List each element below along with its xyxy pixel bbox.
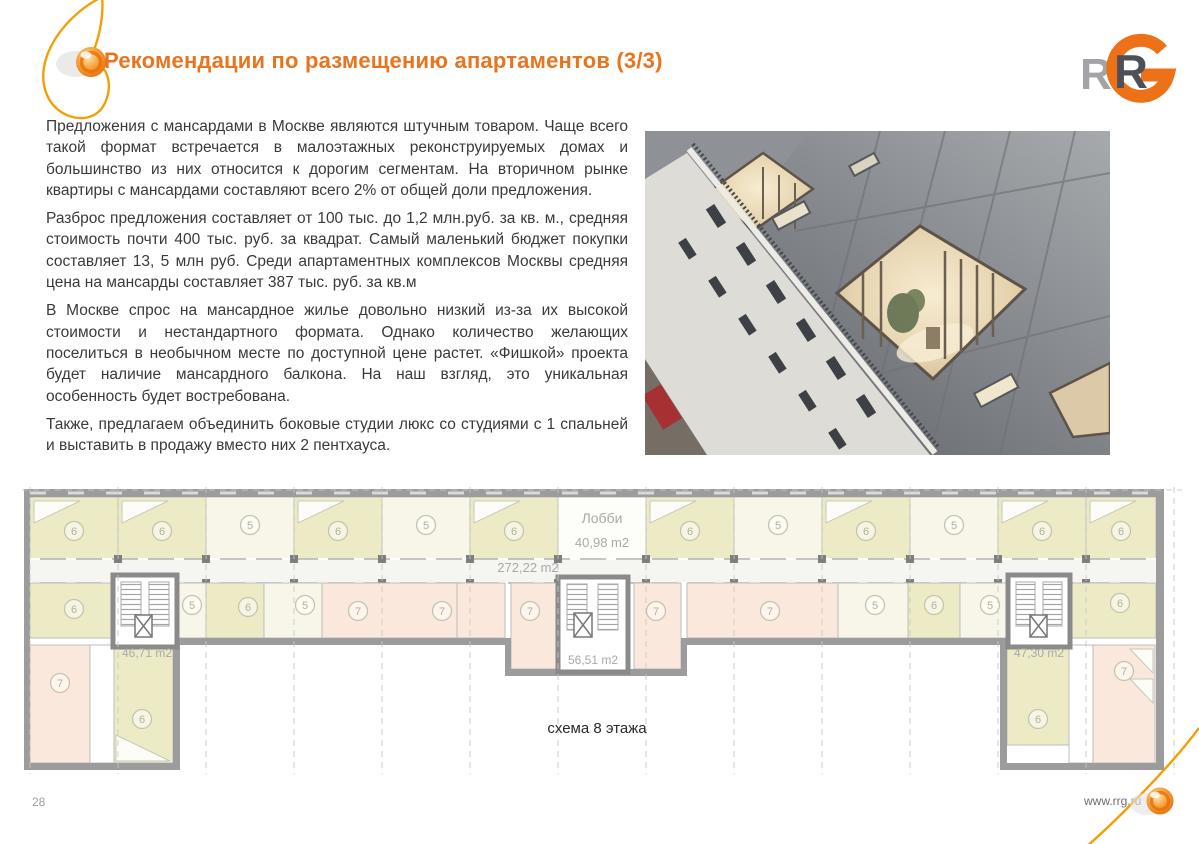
plan-caption: схема 8 этажа: [547, 720, 647, 737]
svg-text:6: 6: [931, 600, 937, 612]
room-number-badge: 6: [133, 710, 152, 729]
room-number-badge: 5: [945, 516, 964, 535]
svg-text:6: 6: [1035, 714, 1041, 726]
svg-text:6: 6: [863, 526, 869, 538]
room-number-badge: 6: [681, 522, 700, 541]
svg-text:5: 5: [189, 600, 195, 612]
room-number-badge: 5: [296, 596, 315, 615]
left-stair-area-label: 46,71 m2: [122, 646, 172, 660]
room-number-badge: 7: [1115, 662, 1134, 681]
svg-text:5: 5: [951, 520, 957, 532]
svg-text:6: 6: [1117, 598, 1123, 610]
room-number-badge: 6: [153, 522, 172, 541]
room-number-badge: 5: [417, 516, 436, 535]
svg-text:5: 5: [775, 520, 781, 532]
svg-text:6: 6: [159, 526, 165, 538]
decorative-swirl-bottom-right: [1059, 724, 1199, 844]
svg-text:6: 6: [1039, 526, 1045, 538]
bead-highlight: [1150, 792, 1160, 799]
logo-letter-r-dark: R: [1114, 44, 1148, 99]
svg-text:5: 5: [987, 600, 993, 612]
room-number-badge: 7: [647, 602, 666, 621]
room-number-badge: 7: [521, 602, 540, 621]
svg-text:6: 6: [245, 602, 251, 614]
room-number-badge: 6: [505, 522, 524, 541]
room-number-badge: 6: [857, 522, 876, 541]
building-photo: [645, 131, 1110, 455]
bead-highlight: [81, 51, 92, 58]
swirl-line: [1085, 728, 1199, 844]
room-number-badge: 6: [329, 522, 348, 541]
room-number-badge: 6: [1033, 522, 1052, 541]
svg-text:6: 6: [1118, 526, 1124, 538]
room-number-badge: 6: [925, 596, 944, 615]
stair-core-left: [113, 575, 177, 647]
room-number-badge: 5: [769, 516, 788, 535]
svg-text:5: 5: [247, 520, 253, 532]
svg-text:6: 6: [71, 526, 77, 538]
terrace-plant: [905, 289, 925, 313]
svg-text:7: 7: [355, 606, 361, 618]
room-number-badge: 5: [241, 516, 260, 535]
svg-text:7: 7: [439, 606, 445, 618]
room-number-badge: 6: [1029, 710, 1048, 729]
right-stair-area-label: 47,30 m2: [1014, 646, 1064, 660]
svg-text:7: 7: [653, 606, 659, 618]
room-number-badge: 7: [51, 674, 70, 693]
room-number-badge: 5: [981, 596, 1000, 615]
svg-text:7: 7: [527, 606, 533, 618]
svg-text:7: 7: [1121, 666, 1127, 678]
center-stair-area-label: 56,51 m2: [568, 653, 618, 667]
svg-text:5: 5: [302, 600, 308, 612]
room-number-badge: 7: [761, 602, 780, 621]
paragraph-proposal: Также, предлагаем объединить боковые сту…: [46, 414, 628, 457]
room-number-badge: 5: [866, 596, 885, 615]
rrg-logo: R R: [1078, 28, 1190, 114]
paragraph-demand: В Москве спрос на мансардное жилье довол…: [46, 300, 628, 406]
article-text-block: Предложения с мансардами в Москве являют…: [46, 116, 628, 463]
svg-text:5: 5: [872, 600, 878, 612]
floor-plan: Лобби 40,98 m2 272,22 m2 46,71 m2 56,51 …: [22, 487, 1182, 777]
room-number-badge: 6: [65, 600, 84, 619]
svg-text:6: 6: [139, 714, 145, 726]
room-number-badge: 6: [239, 598, 258, 617]
svg-text:5: 5: [423, 520, 429, 532]
room-number-badge: 7: [433, 602, 452, 621]
page-number: 28: [32, 795, 45, 809]
page-title: Рекомендации по размещению апартаментов …: [104, 48, 864, 74]
svg-text:6: 6: [71, 604, 77, 616]
lobby-area-label: 40,98 m2: [575, 535, 629, 550]
svg-text:6: 6: [335, 526, 341, 538]
svg-text:6: 6: [511, 526, 517, 538]
room-number-badge: 7: [349, 602, 368, 621]
paragraph-offer: Предложения с мансардами в Москве являют…: [46, 116, 628, 201]
svg-text:6: 6: [687, 526, 693, 538]
svg-text:7: 7: [57, 678, 63, 690]
svg-text:7: 7: [767, 606, 773, 618]
room-number-badge: 5: [183, 596, 202, 615]
corridor-area-label: 272,22 m2: [497, 560, 558, 575]
room-number-badge: 6: [1111, 594, 1130, 613]
stair-core-right: [1008, 575, 1070, 647]
room-number-badge: 6: [65, 522, 84, 541]
paragraph-prices: Разброс предложения составляет от 100 ты…: [46, 208, 628, 293]
terrace-chair: [926, 327, 940, 349]
room-number-badge: 6: [1112, 522, 1131, 541]
lobby-title: Лобби: [582, 510, 623, 526]
